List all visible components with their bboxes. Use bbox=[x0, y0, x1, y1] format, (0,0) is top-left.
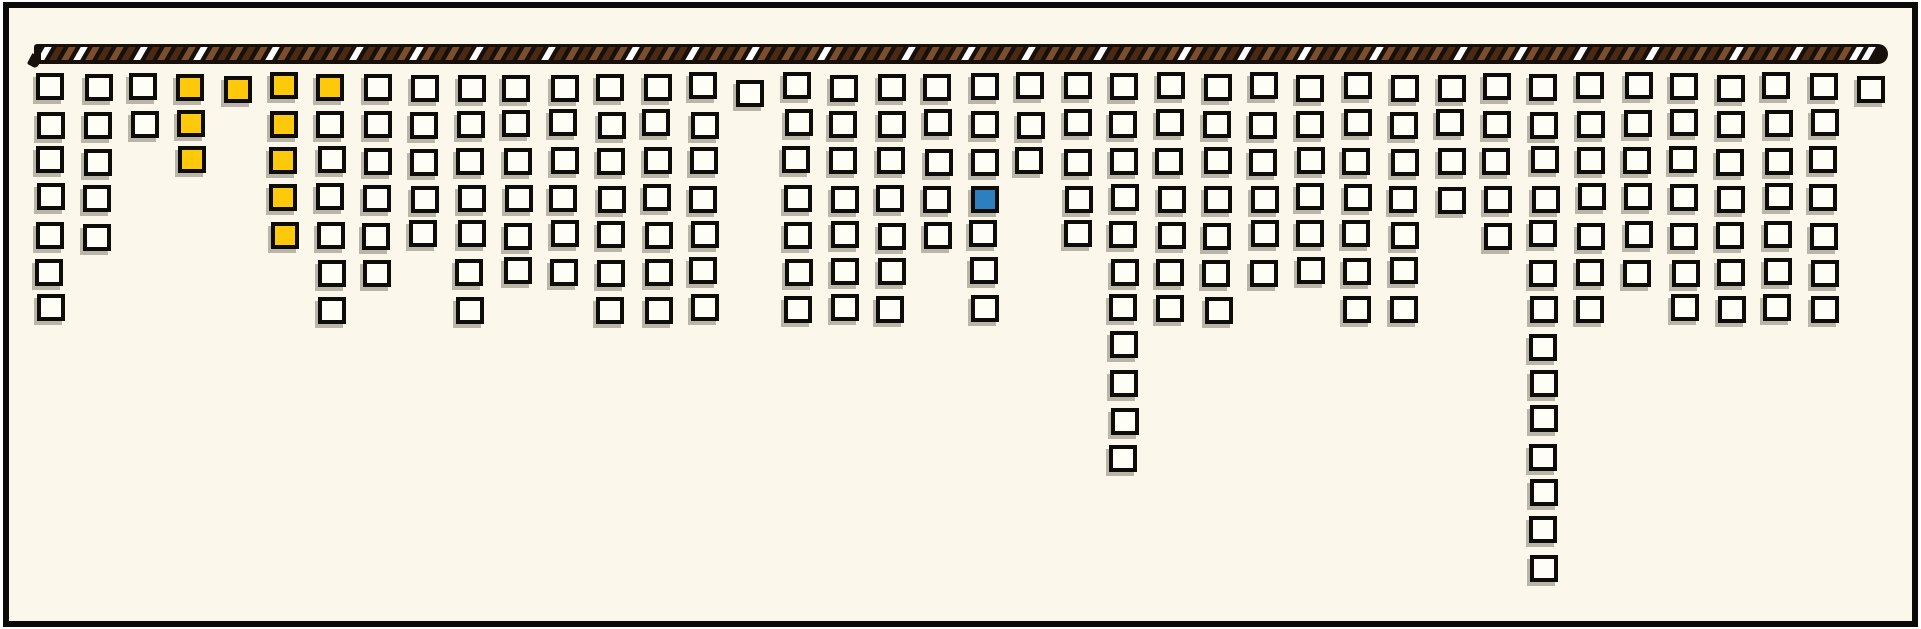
unit-square bbox=[1156, 109, 1184, 136]
unit-square bbox=[316, 111, 344, 138]
unit-square bbox=[971, 111, 999, 138]
unit-square bbox=[597, 148, 625, 175]
unit-square bbox=[1576, 72, 1604, 99]
unit-square bbox=[36, 146, 64, 173]
unit-square bbox=[1391, 149, 1419, 176]
unit-square bbox=[829, 111, 857, 138]
unit-square bbox=[1530, 370, 1558, 397]
yellow-square bbox=[269, 184, 297, 211]
unit-square bbox=[690, 147, 718, 174]
unit-square bbox=[409, 220, 437, 247]
unit-square bbox=[1576, 259, 1604, 286]
unit-square bbox=[1250, 72, 1278, 99]
unit-square bbox=[1157, 72, 1185, 99]
unit-square bbox=[1390, 112, 1418, 139]
yellow-square bbox=[176, 74, 204, 101]
unit-square bbox=[598, 186, 626, 213]
unit-square bbox=[1296, 75, 1324, 102]
unit-square bbox=[1015, 147, 1043, 174]
unit-square bbox=[784, 296, 812, 323]
unit-square bbox=[551, 75, 579, 102]
unit-square bbox=[1577, 223, 1605, 250]
unit-square bbox=[1718, 296, 1746, 323]
unit-square bbox=[37, 294, 65, 321]
unit-square bbox=[1670, 184, 1698, 211]
unit-square bbox=[411, 186, 439, 213]
unit-square bbox=[504, 223, 532, 250]
unit-square bbox=[1296, 220, 1324, 247]
unit-square bbox=[1296, 183, 1324, 210]
unit-square bbox=[1717, 186, 1745, 213]
unit-square bbox=[36, 73, 64, 100]
unit-square bbox=[645, 222, 673, 249]
unit-square bbox=[831, 186, 859, 213]
unit-square bbox=[736, 80, 764, 107]
unit-square bbox=[1576, 296, 1604, 323]
unit-square bbox=[1438, 148, 1466, 175]
unit-square bbox=[1671, 294, 1699, 321]
unit-square bbox=[1811, 109, 1839, 136]
unit-square bbox=[784, 185, 812, 212]
unit-square bbox=[689, 257, 717, 284]
unit-square bbox=[1716, 149, 1744, 176]
unit-square bbox=[550, 259, 578, 286]
unit-square bbox=[364, 74, 392, 101]
unit-square bbox=[1109, 221, 1137, 248]
unit-square bbox=[877, 147, 905, 174]
unit-square bbox=[1529, 444, 1557, 471]
unit-square bbox=[1438, 187, 1466, 214]
unit-square bbox=[1204, 74, 1232, 101]
unit-square bbox=[1109, 294, 1137, 321]
unit-square bbox=[1624, 110, 1652, 137]
unit-square bbox=[1111, 184, 1139, 211]
unit-square bbox=[1296, 111, 1324, 138]
unit-square bbox=[1670, 73, 1698, 100]
unit-square bbox=[1810, 73, 1838, 100]
unit-square bbox=[1577, 147, 1605, 174]
unit-square bbox=[35, 259, 63, 286]
unit-square bbox=[1016, 72, 1044, 99]
unit-square bbox=[1764, 258, 1792, 285]
unit-square bbox=[1156, 295, 1184, 322]
unit-square bbox=[924, 222, 952, 249]
unit-square bbox=[830, 75, 858, 102]
unit-square bbox=[1064, 149, 1092, 176]
unit-square bbox=[925, 149, 953, 176]
unit-square bbox=[691, 112, 719, 139]
unit-square bbox=[1204, 147, 1232, 174]
unit-square bbox=[923, 186, 951, 213]
yellow-square bbox=[178, 146, 206, 173]
unit-square bbox=[502, 75, 530, 102]
unit-square bbox=[83, 224, 111, 251]
unit-square bbox=[1344, 72, 1372, 99]
unit-square bbox=[1156, 259, 1184, 286]
unit-square bbox=[1625, 221, 1653, 248]
unit-square bbox=[1857, 76, 1885, 103]
unit-square bbox=[1065, 186, 1093, 213]
unit-square bbox=[455, 259, 483, 286]
unit-square bbox=[1577, 111, 1605, 138]
unit-square bbox=[1530, 555, 1558, 582]
unit-square bbox=[1578, 183, 1606, 210]
unit-square bbox=[831, 221, 859, 248]
unit-square bbox=[1344, 109, 1372, 136]
unit-square bbox=[364, 148, 392, 175]
unit-square bbox=[1670, 109, 1698, 136]
unit-square bbox=[598, 112, 626, 139]
unit-square bbox=[829, 147, 857, 174]
unit-square bbox=[1669, 146, 1697, 173]
unit-square bbox=[317, 222, 345, 249]
unit-square bbox=[971, 73, 999, 100]
unit-square bbox=[1155, 148, 1183, 175]
unit-square bbox=[689, 186, 717, 213]
unit-square bbox=[1811, 296, 1839, 323]
unit-square bbox=[971, 149, 999, 176]
unit-square bbox=[1064, 220, 1092, 247]
unit-square bbox=[1251, 220, 1279, 247]
unit-square bbox=[1716, 222, 1744, 249]
unit-square bbox=[1342, 148, 1370, 175]
unit-square bbox=[1203, 223, 1231, 250]
unit-square bbox=[316, 183, 344, 210]
unit-square bbox=[505, 185, 533, 212]
unit-square bbox=[549, 185, 577, 212]
unit-square bbox=[363, 260, 391, 287]
unit-square bbox=[1110, 73, 1138, 100]
unit-square bbox=[1532, 186, 1560, 213]
blue-square bbox=[971, 186, 999, 213]
unit-square bbox=[642, 109, 670, 136]
unit-square bbox=[1064, 109, 1092, 136]
yellow-square bbox=[224, 76, 252, 103]
unit-square bbox=[1530, 479, 1558, 506]
unit-square bbox=[1483, 111, 1511, 138]
unit-square bbox=[85, 74, 113, 101]
unit-square bbox=[1763, 294, 1791, 321]
unit-square bbox=[878, 223, 906, 250]
unit-square bbox=[410, 112, 438, 139]
unit-square bbox=[1158, 222, 1186, 249]
yellow-square bbox=[269, 147, 297, 174]
unit-square bbox=[1251, 186, 1279, 213]
unit-square bbox=[129, 73, 157, 100]
yellow-square bbox=[316, 74, 344, 101]
unit-square bbox=[970, 257, 998, 284]
unit-square bbox=[1530, 296, 1558, 323]
unit-square bbox=[1529, 334, 1557, 361]
chart-canvas bbox=[0, 0, 1921, 629]
unit-square bbox=[785, 259, 813, 286]
unit-square bbox=[782, 146, 810, 173]
unit-square bbox=[458, 75, 486, 102]
unit-square bbox=[458, 185, 486, 212]
unit-square bbox=[551, 220, 579, 247]
unit-square bbox=[971, 295, 999, 322]
unit-square bbox=[1531, 146, 1559, 173]
unit-square bbox=[924, 109, 952, 136]
unit-square bbox=[1111, 259, 1139, 286]
unit-square bbox=[1391, 222, 1419, 249]
unit-square bbox=[1249, 149, 1277, 176]
unit-square bbox=[1810, 223, 1838, 250]
unit-square bbox=[969, 220, 997, 247]
unit-square bbox=[597, 260, 625, 287]
unit-square bbox=[1765, 110, 1793, 137]
unit-square bbox=[1623, 260, 1651, 287]
unit-square bbox=[364, 111, 392, 138]
unit-square bbox=[458, 220, 486, 247]
unit-square bbox=[1484, 186, 1512, 213]
unit-square bbox=[318, 146, 346, 173]
unit-square bbox=[1391, 75, 1419, 102]
unit-square bbox=[318, 297, 346, 324]
unit-square bbox=[1017, 112, 1045, 139]
unit-square bbox=[643, 184, 671, 211]
unit-square bbox=[1344, 184, 1372, 211]
unit-square bbox=[831, 294, 859, 321]
unit-square bbox=[1482, 148, 1510, 175]
unit-square bbox=[1249, 112, 1277, 139]
unit-square bbox=[1064, 72, 1092, 99]
unit-square bbox=[596, 74, 624, 101]
unit-square bbox=[36, 222, 64, 249]
unit-square bbox=[597, 221, 625, 248]
unit-square bbox=[1764, 221, 1792, 248]
unit-square bbox=[1624, 183, 1652, 210]
unit-square bbox=[923, 74, 951, 101]
yellow-square bbox=[177, 110, 205, 137]
unit-square bbox=[1110, 148, 1138, 175]
unit-square bbox=[84, 112, 112, 139]
unit-square bbox=[1109, 111, 1137, 138]
squares-grid bbox=[0, 0, 1921, 629]
unit-square bbox=[1529, 220, 1557, 247]
unit-square bbox=[783, 72, 811, 99]
unit-square bbox=[410, 149, 438, 176]
unit-square bbox=[1436, 109, 1464, 136]
unit-square bbox=[1250, 260, 1278, 287]
unit-square bbox=[1530, 405, 1558, 432]
unit-square bbox=[1297, 257, 1325, 284]
unit-square bbox=[1111, 408, 1139, 435]
unit-square bbox=[1484, 223, 1512, 250]
unit-square bbox=[1202, 260, 1230, 287]
yellow-square bbox=[270, 111, 298, 138]
unit-square bbox=[784, 222, 812, 249]
unit-square bbox=[596, 297, 624, 324]
unit-square bbox=[551, 147, 579, 174]
unit-square bbox=[502, 110, 530, 137]
unit-square bbox=[1762, 72, 1790, 99]
unit-square bbox=[456, 297, 484, 324]
unit-square bbox=[549, 109, 577, 136]
unit-square bbox=[878, 258, 906, 285]
unit-square bbox=[1529, 260, 1557, 287]
unit-square bbox=[644, 147, 672, 174]
unit-square bbox=[645, 259, 673, 286]
unit-square bbox=[37, 183, 65, 210]
unit-square bbox=[831, 258, 859, 285]
unit-square bbox=[1110, 370, 1138, 397]
unit-square bbox=[1342, 220, 1370, 247]
unit-square bbox=[1623, 147, 1651, 174]
yellow-square bbox=[270, 72, 298, 99]
unit-square bbox=[1765, 148, 1793, 175]
unit-square bbox=[1717, 259, 1745, 286]
unit-square bbox=[1809, 146, 1837, 173]
unit-square bbox=[1158, 186, 1186, 213]
unit-square bbox=[504, 148, 532, 175]
unit-square bbox=[1203, 111, 1231, 138]
unit-square bbox=[876, 296, 904, 323]
unit-square bbox=[1390, 296, 1418, 323]
unit-square bbox=[1389, 186, 1417, 213]
unit-square bbox=[1109, 445, 1137, 472]
unit-square bbox=[645, 297, 673, 324]
unit-square bbox=[363, 185, 391, 212]
unit-square bbox=[362, 223, 390, 250]
unit-square bbox=[1297, 147, 1325, 174]
unit-square bbox=[318, 260, 346, 287]
unit-square bbox=[37, 112, 65, 139]
unit-square bbox=[1672, 260, 1700, 287]
unit-square bbox=[457, 111, 485, 138]
unit-square bbox=[1809, 184, 1837, 211]
unit-square bbox=[1529, 74, 1557, 101]
unit-square bbox=[1717, 111, 1745, 138]
unit-square bbox=[1529, 516, 1557, 543]
unit-square bbox=[691, 221, 719, 248]
unit-square bbox=[1343, 296, 1371, 323]
unit-square bbox=[1343, 258, 1371, 285]
unit-square bbox=[1811, 260, 1839, 287]
unit-square bbox=[456, 148, 484, 175]
unit-square bbox=[1110, 331, 1138, 358]
unit-square bbox=[504, 257, 532, 284]
yellow-square bbox=[271, 222, 299, 249]
unit-square bbox=[1530, 112, 1558, 139]
unit-square bbox=[1390, 257, 1418, 284]
unit-square bbox=[878, 74, 906, 101]
unit-square bbox=[131, 111, 159, 138]
unit-square bbox=[83, 185, 111, 212]
unit-square bbox=[876, 185, 904, 212]
unit-square bbox=[785, 109, 813, 136]
unit-square bbox=[1438, 75, 1466, 102]
unit-square bbox=[1204, 186, 1232, 213]
unit-square bbox=[689, 72, 717, 99]
unit-square bbox=[644, 74, 672, 101]
unit-square bbox=[411, 75, 439, 102]
unit-square bbox=[1625, 72, 1653, 99]
unit-square bbox=[878, 111, 906, 138]
unit-square bbox=[1483, 73, 1511, 100]
unit-square bbox=[1717, 75, 1745, 102]
unit-square bbox=[1205, 297, 1233, 324]
unit-square bbox=[84, 149, 112, 176]
unit-square bbox=[1765, 183, 1793, 210]
unit-square bbox=[691, 294, 719, 321]
unit-square bbox=[1670, 223, 1698, 250]
